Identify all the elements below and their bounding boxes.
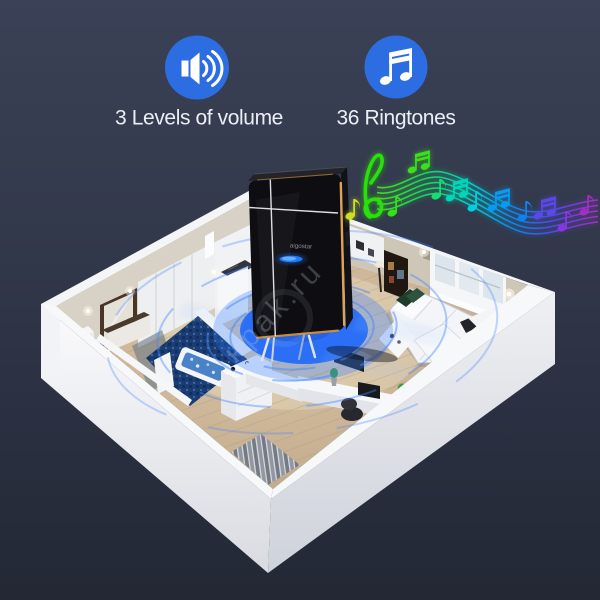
svg-text:3 Levels of volume: 3 Levels of volume <box>115 107 283 130</box>
svg-text:aigostar: aigostar <box>290 242 313 250</box>
svg-text:36 Ringtones: 36 Ringtones <box>337 107 456 130</box>
